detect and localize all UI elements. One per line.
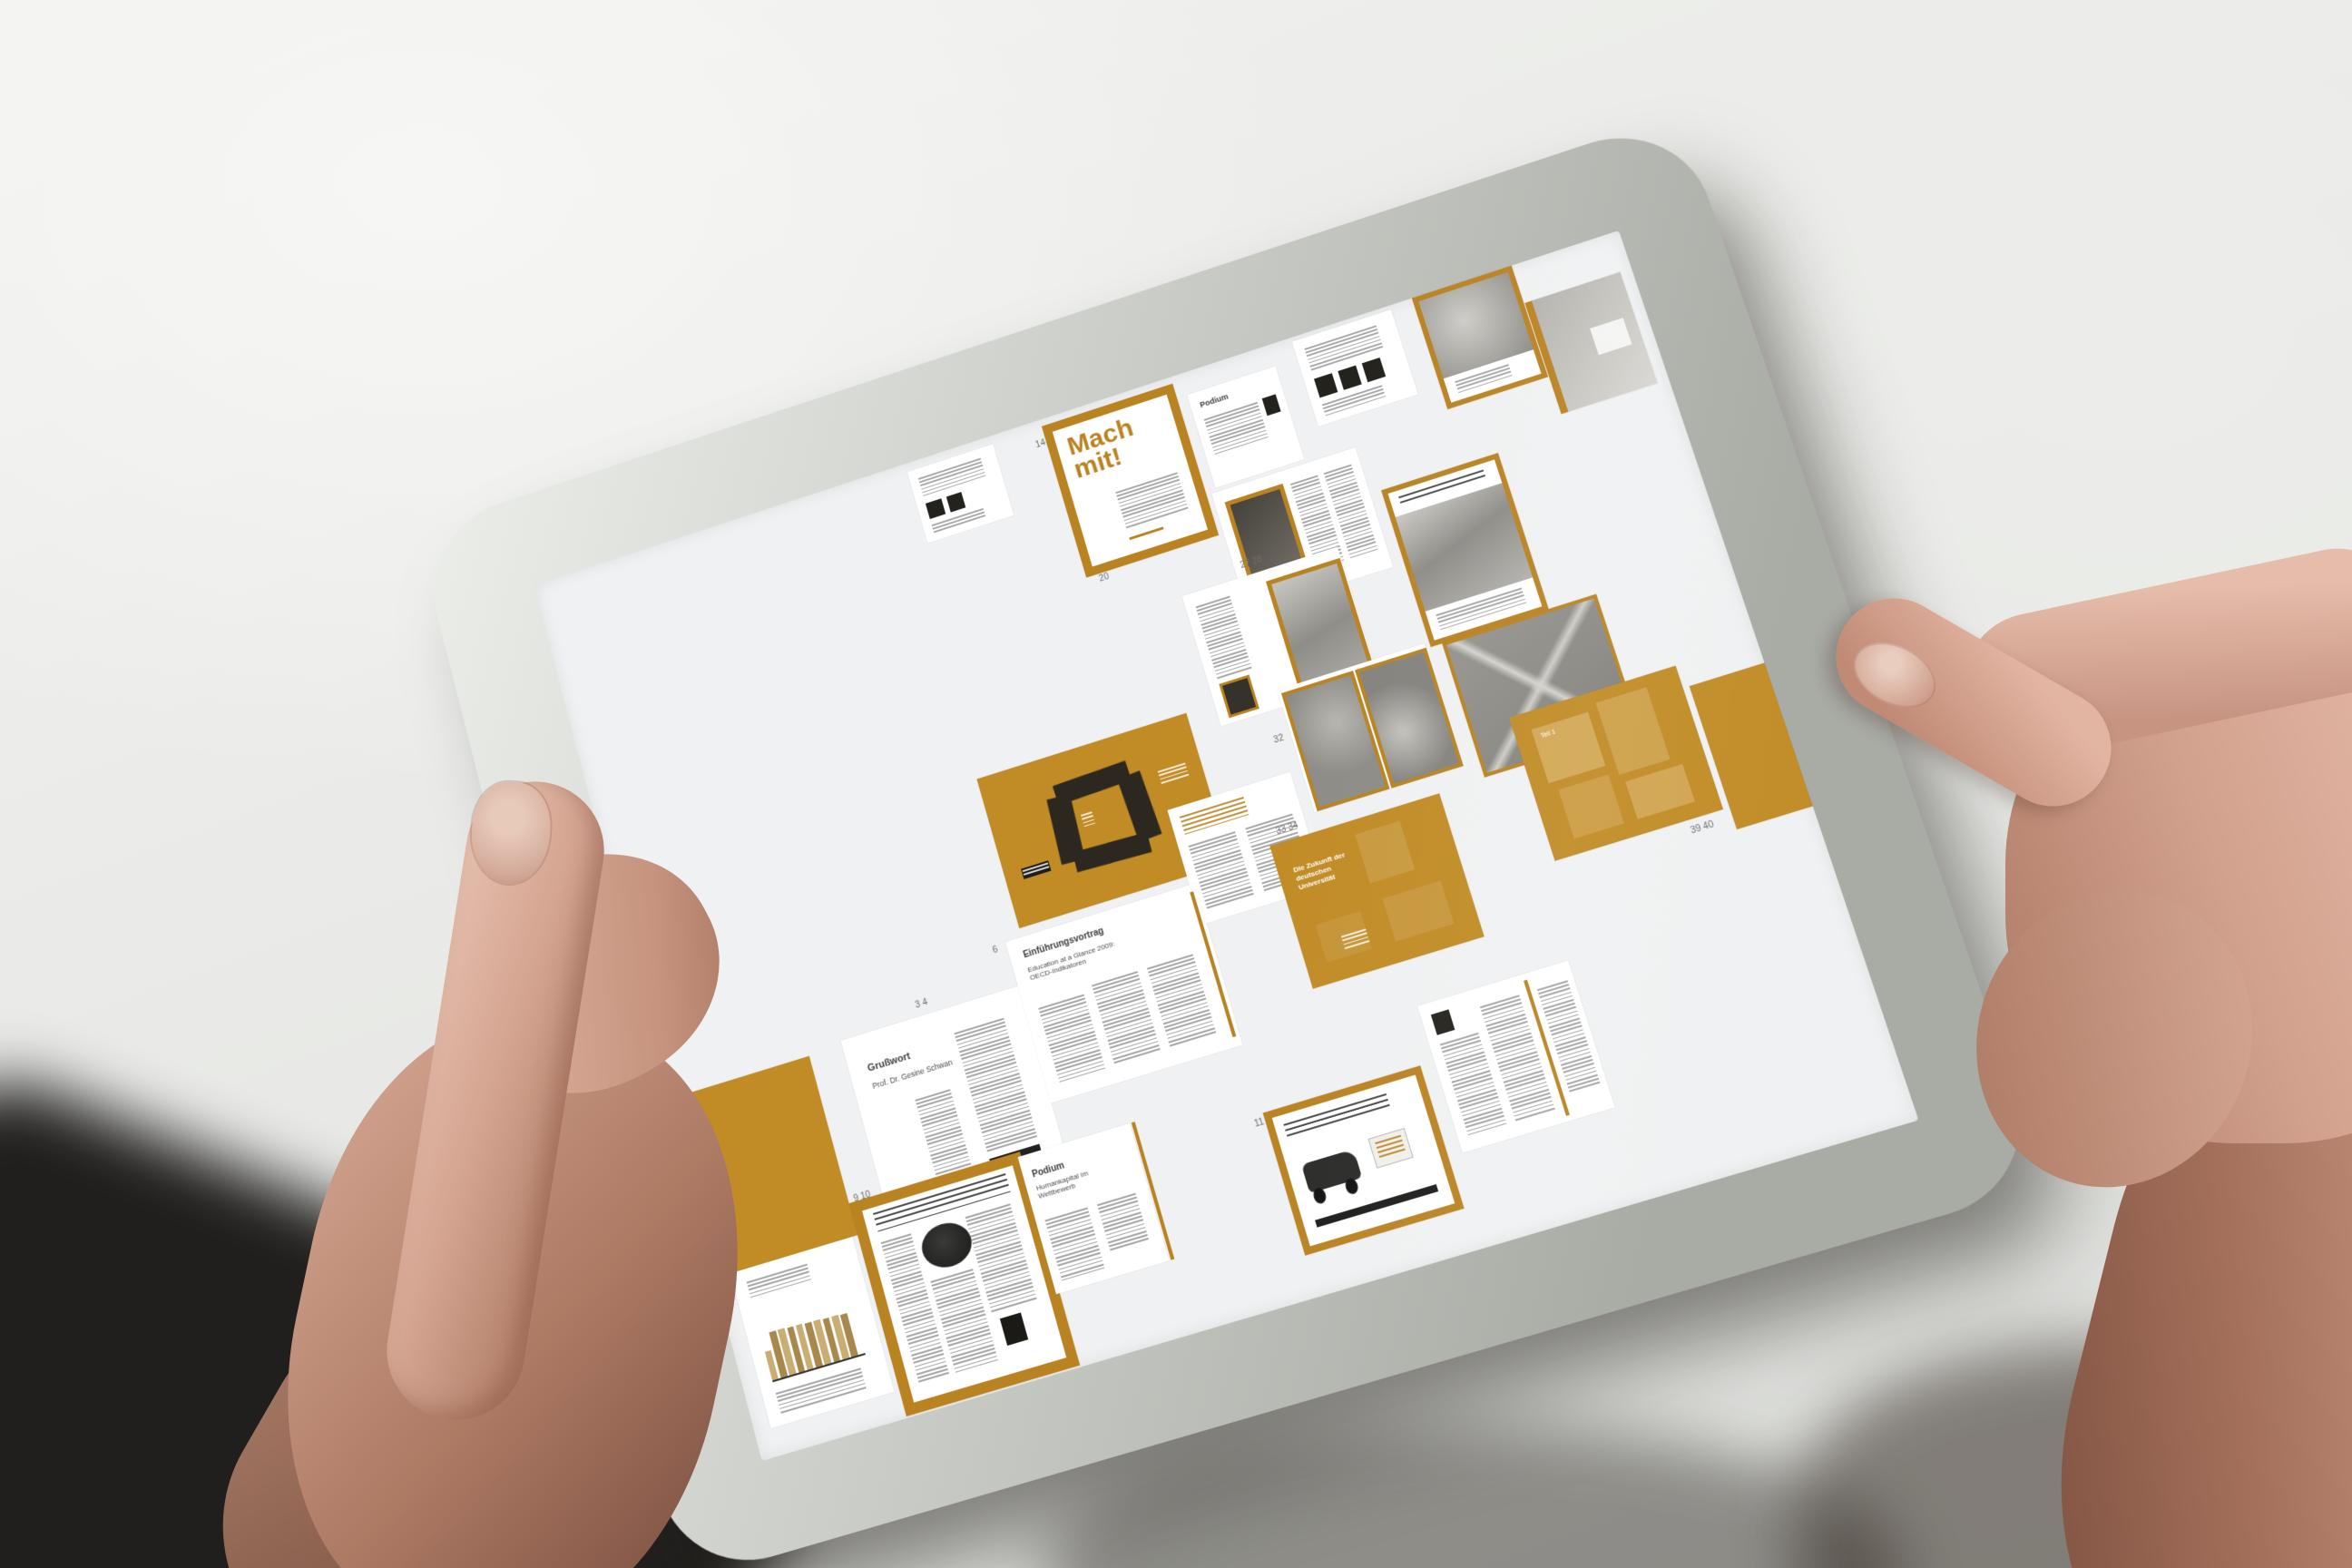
pages-overview-canvas: Mach mit!1420Podium27 2832Die Zukunft de… <box>534 230 1919 1461</box>
page-number: 3 4 <box>915 998 929 1011</box>
page-number: 32 <box>1273 733 1286 746</box>
cast-shadow-bottom-center <box>1044 1425 1906 1568</box>
page-number: 6 <box>992 945 999 955</box>
mini-spread-a[interactable] <box>907 445 1014 544</box>
page-title: Podium <box>1199 392 1230 409</box>
page-photo-corner[interactable] <box>1412 266 1548 409</box>
page-number: 14 <box>1034 438 1046 450</box>
background-wall: Mach mit!1420Podium27 2832Die Zukunft de… <box>0 0 2352 1568</box>
cover-title: Mach mit! <box>1064 405 1175 482</box>
page-number: 11 <box>1253 1117 1265 1130</box>
page-number: 9 10 <box>853 1190 872 1204</box>
page-number: 20 <box>1098 572 1110 583</box>
page-photo-box[interactable] <box>1524 272 1657 414</box>
spread-11-12[interactable]: 11 <box>1263 1065 1465 1256</box>
essay-title: Die Zukunft der deutschen Universität <box>1292 847 1365 893</box>
spread-13[interactable] <box>1418 961 1615 1153</box>
page-number: 39 40 <box>1690 819 1715 836</box>
screen[interactable]: Mach mit!1420Podium27 2832Die Zukunft de… <box>534 230 1919 1461</box>
mini-spread-b[interactable] <box>1292 309 1418 426</box>
